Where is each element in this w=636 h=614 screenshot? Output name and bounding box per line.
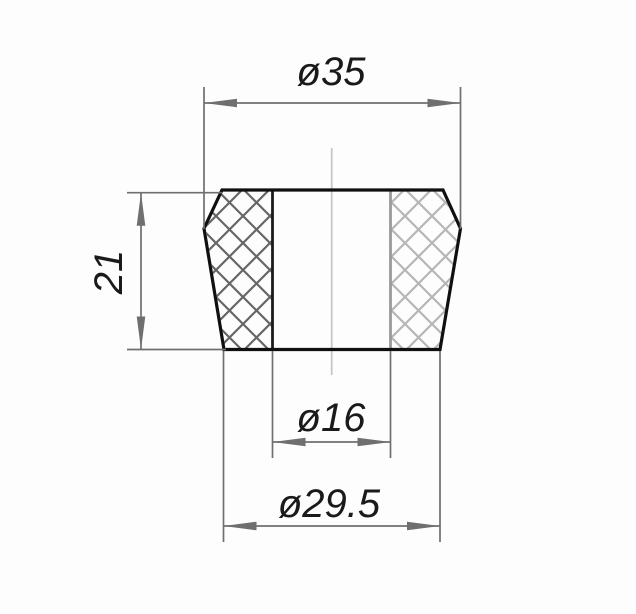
arrowhead-up-icon <box>137 193 146 226</box>
dimension-label-height: 21 <box>87 250 131 296</box>
dimension-label-top-diameter: ø35 <box>297 50 367 94</box>
drawing-canvas: ø35 21 ø16 ø29.5 <box>0 0 636 614</box>
arrowhead-left-icon <box>204 99 237 108</box>
technical-drawing: ø35 21 ø16 ø29.5 <box>0 0 636 614</box>
left-crosshatch-section <box>206 192 272 349</box>
dimension-label-bore-diameter: ø16 <box>297 396 367 440</box>
arrowhead-down-icon <box>137 317 146 350</box>
arrowhead-right-icon <box>407 522 440 531</box>
dimension-bottom-diameter: ø29.5 <box>224 351 441 542</box>
dimension-height: 21 <box>87 193 226 350</box>
arrowhead-right-icon <box>428 99 461 108</box>
right-crosshatch-section <box>391 192 459 349</box>
arrowhead-left-icon <box>224 522 257 531</box>
dimension-label-bottom-diameter: ø29.5 <box>278 482 381 526</box>
